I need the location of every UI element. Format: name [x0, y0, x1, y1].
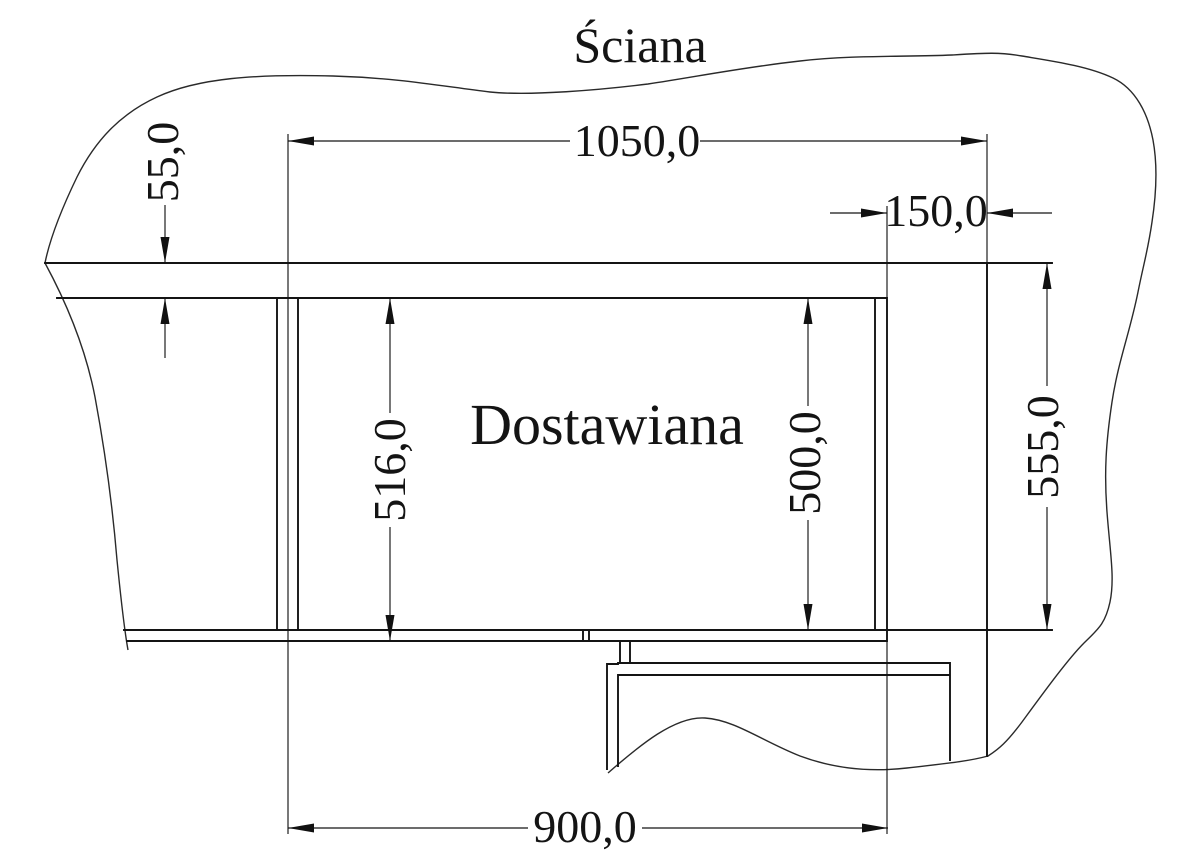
cabinet-label: Dostawiana — [470, 392, 744, 457]
dim-right-niche-label: 150,0 — [884, 185, 988, 236]
wall-label: Ściana — [573, 17, 706, 73]
dim-wall-gap-label: 55,0 — [137, 122, 188, 203]
dim-bottom-width-label: 900,0 — [533, 801, 637, 852]
dimension-drawing: Ściana Dostawiana 1050,0 150,0 55,0 516,… — [0, 0, 1200, 858]
cabinet-structure — [45, 263, 1052, 769]
dim-inner-depth-label: 500,0 — [779, 411, 830, 515]
dimension-arrowheads — [161, 137, 1052, 833]
dim-top-width-label: 1050,0 — [574, 115, 701, 166]
technical-drawing-canvas: Ściana Dostawiana 1050,0 150,0 55,0 516,… — [0, 0, 1200, 858]
dim-outer-depth-label: 516,0 — [364, 418, 415, 522]
break-lines — [45, 263, 988, 773]
dim-wall-niche-depth-label: 555,0 — [1017, 395, 1068, 499]
